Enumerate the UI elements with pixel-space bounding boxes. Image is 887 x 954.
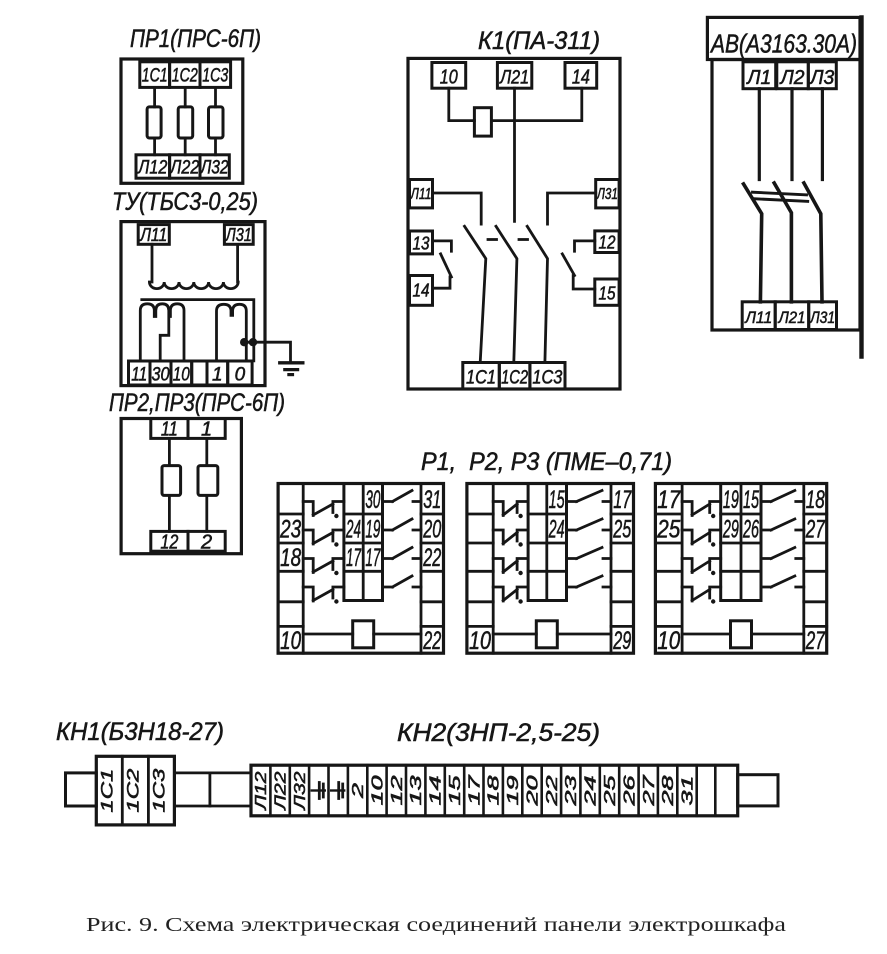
svg-text:24: 24 <box>548 516 565 544</box>
svg-text:22: 22 <box>423 627 442 655</box>
svg-text:31: 31 <box>423 486 441 514</box>
svg-text:Л12: Л12 <box>137 158 168 179</box>
svg-text:12: 12 <box>389 775 406 805</box>
svg-text:25: 25 <box>613 516 632 544</box>
svg-text:ПР2,ПР3(ПРС-6П): ПР2,ПР3(ПРС-6П) <box>109 389 285 417</box>
svg-text:26: 26 <box>621 775 638 807</box>
svg-text:АВ(А3163.30А): АВ(А3163.30А) <box>709 29 857 59</box>
svg-text:Р1, Р2, Р3 (ПМЕ–0,71): Р1, Р2, Р3 (ПМЕ–0,71) <box>421 448 672 476</box>
svg-text:Л12: Л12 <box>253 771 270 810</box>
svg-text:10: 10 <box>469 627 491 655</box>
svg-text:2: 2 <box>350 783 367 800</box>
svg-text:14: 14 <box>572 67 590 89</box>
svg-text:29: 29 <box>722 516 739 544</box>
svg-text:10: 10 <box>173 365 190 386</box>
svg-text:12: 12 <box>599 233 616 253</box>
svg-text:29: 29 <box>613 627 632 655</box>
svg-text:Л2: Л2 <box>779 67 805 89</box>
svg-text:17: 17 <box>613 486 632 514</box>
svg-text:24: 24 <box>345 516 361 544</box>
svg-text:24: 24 <box>583 775 600 807</box>
svg-text:31: 31 <box>680 776 697 806</box>
svg-text:Л3: Л3 <box>808 67 834 89</box>
svg-text:КН2(3НП-2,5-25): КН2(3НП-2,5-25) <box>397 719 600 747</box>
svg-text:17: 17 <box>365 544 381 572</box>
svg-text:19: 19 <box>365 516 380 544</box>
svg-text:15: 15 <box>743 486 759 514</box>
svg-text:17: 17 <box>346 544 362 572</box>
svg-text:0: 0 <box>235 365 246 386</box>
svg-text:17: 17 <box>466 774 483 806</box>
svg-text:1С3: 1С3 <box>150 768 169 813</box>
svg-text:1С2: 1С2 <box>172 66 198 87</box>
svg-text:27: 27 <box>641 774 658 808</box>
svg-text:30: 30 <box>365 486 380 514</box>
svg-text:18: 18 <box>806 486 825 514</box>
svg-text:22: 22 <box>423 544 442 572</box>
svg-text:Л21: Л21 <box>778 308 806 327</box>
svg-text:18: 18 <box>486 775 503 805</box>
svg-text:23: 23 <box>563 775 580 807</box>
svg-text:Л11: Л11 <box>410 186 432 203</box>
svg-text:Л22: Л22 <box>273 771 290 810</box>
svg-text:1: 1 <box>212 365 223 386</box>
svg-text:20: 20 <box>525 775 542 807</box>
svg-text:15: 15 <box>447 775 464 805</box>
svg-text:1С1: 1С1 <box>466 368 496 389</box>
svg-text:25: 25 <box>602 775 619 807</box>
svg-text:13: 13 <box>413 234 430 254</box>
svg-text:Л21: Л21 <box>498 68 529 89</box>
svg-text:ПР1(ПРС-6П): ПР1(ПРС-6П) <box>130 25 261 53</box>
svg-text:1С2: 1С2 <box>501 368 528 389</box>
svg-text:19: 19 <box>723 486 739 514</box>
svg-text:28: 28 <box>660 775 677 807</box>
svg-text:1С1: 1С1 <box>142 66 168 87</box>
svg-text:10: 10 <box>280 627 301 655</box>
svg-text:1С2: 1С2 <box>124 768 143 813</box>
svg-text:25: 25 <box>656 516 680 544</box>
svg-text:Л11: Л11 <box>139 225 167 245</box>
svg-text:14: 14 <box>413 281 430 301</box>
svg-text:Рис. 9. Схема электрическая со: Рис. 9. Схема электрическая соединений п… <box>86 914 786 936</box>
svg-text:Л1: Л1 <box>745 67 771 89</box>
svg-text:20: 20 <box>423 516 442 544</box>
svg-text:15: 15 <box>549 486 565 514</box>
svg-text:Л22: Л22 <box>169 158 200 179</box>
svg-text:13: 13 <box>408 775 425 805</box>
svg-text:10: 10 <box>657 627 680 655</box>
svg-text:23: 23 <box>279 516 301 544</box>
svg-text:Л32: Л32 <box>292 771 309 810</box>
svg-text:Л31: Л31 <box>596 186 618 203</box>
svg-text:КН1(Б3Н18-27): КН1(Б3Н18-27) <box>56 718 224 746</box>
svg-text:2: 2 <box>200 532 212 554</box>
svg-text:Л11: Л11 <box>744 308 772 327</box>
svg-text:19: 19 <box>505 775 522 805</box>
svg-text:26: 26 <box>742 516 759 544</box>
svg-text:14: 14 <box>428 775 445 805</box>
svg-text:10: 10 <box>440 67 458 89</box>
svg-text:15: 15 <box>599 284 617 304</box>
svg-text:27: 27 <box>805 627 825 655</box>
svg-text:Л32: Л32 <box>199 158 229 179</box>
svg-text:Л31: Л31 <box>225 225 252 245</box>
svg-text:30: 30 <box>152 365 170 386</box>
svg-text:10: 10 <box>370 775 387 805</box>
svg-text:1С3: 1С3 <box>532 368 562 389</box>
svg-text:Л31: Л31 <box>809 308 835 327</box>
svg-text:22: 22 <box>544 775 561 807</box>
svg-text:12: 12 <box>160 532 178 554</box>
svg-text:27: 27 <box>805 516 825 544</box>
svg-text:18: 18 <box>280 544 301 572</box>
svg-text:1С1: 1С1 <box>98 769 117 813</box>
svg-text:1С3: 1С3 <box>202 66 228 87</box>
svg-text:17: 17 <box>657 486 681 514</box>
svg-text:ТУ(ТБС3-0,25): ТУ(ТБС3-0,25) <box>112 188 258 216</box>
svg-text:К1(ПА-311): К1(ПА-311) <box>478 27 600 55</box>
svg-text:11: 11 <box>131 365 147 386</box>
